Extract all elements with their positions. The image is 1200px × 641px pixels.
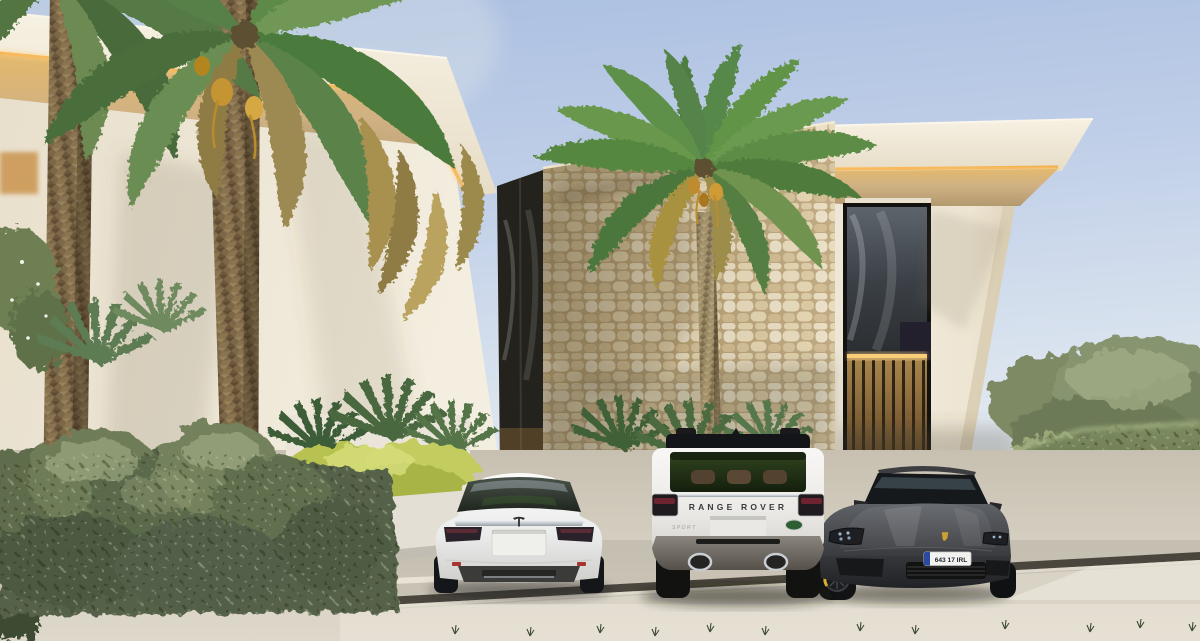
eu-band (924, 552, 930, 566)
villa-exterior-scene: RANGE ROVER SPORT (0, 0, 1200, 641)
headrest (727, 470, 751, 484)
headrest (691, 470, 715, 484)
reflector (577, 562, 586, 566)
side-intake (986, 560, 1010, 576)
exhaust-right (765, 554, 787, 570)
antenna-fin (732, 428, 740, 434)
exhaust-left (689, 554, 711, 570)
reflector (452, 562, 461, 566)
taillight-left (652, 494, 678, 516)
chrome-strip (670, 494, 806, 497)
left-interior-glow (0, 152, 38, 194)
range-rover-sport: RANGE ROVER SPORT (636, 428, 840, 606)
tailgate-text: RANGE ROVER (689, 502, 788, 512)
side-intake (836, 558, 884, 577)
land-rover-badge (786, 520, 803, 530)
porsche-panamera: 643 17 IRL (814, 458, 1014, 604)
headlight-right (983, 532, 1008, 545)
license-plate: 643 17 IRL (924, 552, 971, 566)
headrest (763, 470, 787, 484)
taillight-right (798, 494, 824, 516)
tesla-model-s (424, 460, 614, 600)
sport-badge: SPORT (672, 525, 697, 531)
license-plate-text: 643 17 IRL (935, 557, 968, 564)
